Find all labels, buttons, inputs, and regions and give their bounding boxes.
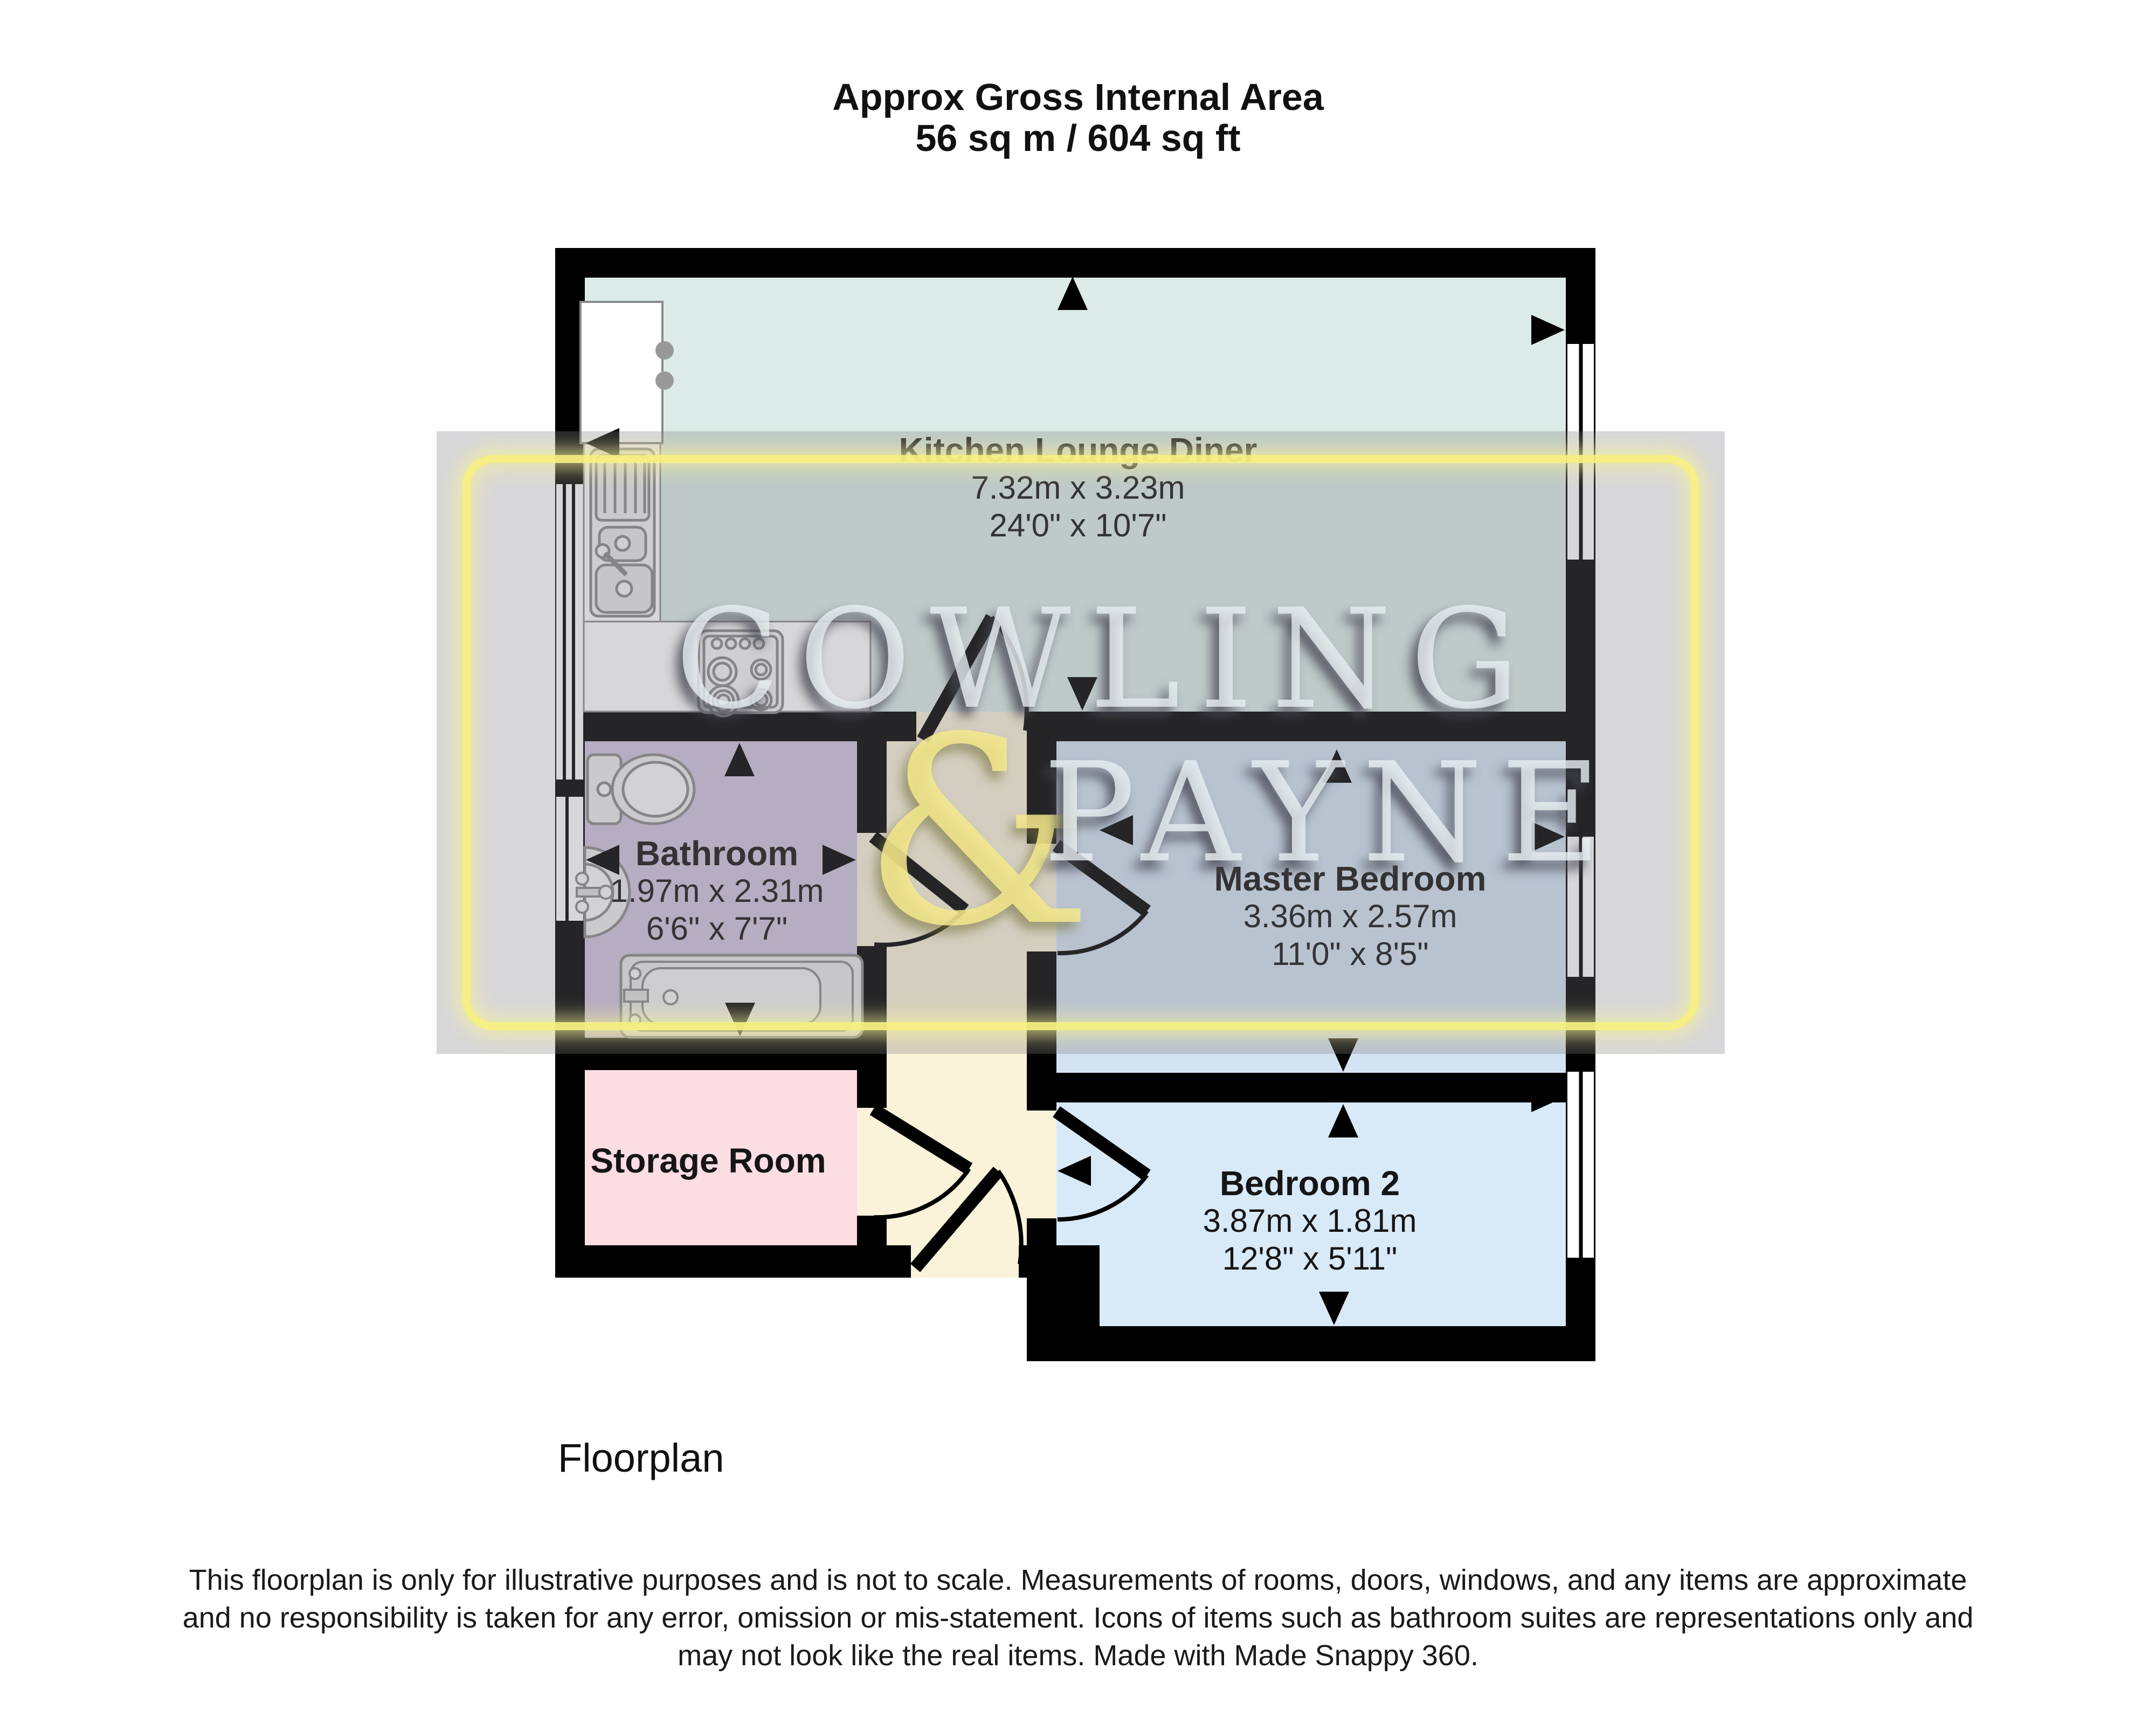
floorplan-page: Approx Gross Internal Area 56 sq m / 604… <box>0 0 2156 1717</box>
wall-bottom-hall-right <box>1019 1245 1056 1278</box>
wall-top <box>555 248 1595 278</box>
plan-caption: Floorplan <box>558 1435 724 1481</box>
bedroom2-name: Bedroom 2 <box>1203 1164 1417 1202</box>
storage-name: Storage Room <box>590 1142 826 1180</box>
window-bedroom2-right <box>1567 1072 1594 1258</box>
watermark-text-cowling: COWLING <box>675 580 1538 740</box>
opening-bedroom2 <box>1027 1111 1056 1218</box>
bedroom2-dim-ft: 12'8" x 5'11" <box>1203 1240 1417 1278</box>
unit-handle-2 <box>655 371 674 390</box>
opening-storage <box>857 1108 887 1216</box>
disclaimer-line1: This floorplan is only for illustrative … <box>0 1561 2156 1599</box>
disclaimer-line3: may not look like the real items. Made w… <box>0 1637 2156 1674</box>
bedroom2-label: Bedroom 2 3.87m x 1.81m 12'8" x 5'11" <box>1203 1164 1417 1278</box>
disclaimer-line2: and no responsibility is taken for any e… <box>0 1599 2156 1637</box>
unit-handle-1 <box>655 341 674 360</box>
wall-master-bedroom2 <box>1027 1073 1595 1102</box>
wall-storage-right-lower <box>857 1216 887 1245</box>
kitchen-unit <box>581 302 662 443</box>
wall-bedroom2-bottom <box>1027 1326 1595 1361</box>
disclaimer: This floorplan is only for illustrative … <box>0 1561 2156 1674</box>
wall-bottom-storage <box>555 1245 911 1278</box>
storage-room-label: Storage Room <box>590 1142 826 1180</box>
bedroom2-dim-m: 3.87m x 1.81m <box>1203 1202 1417 1240</box>
watermark: COWLING & PAYNE <box>437 431 1725 1054</box>
watermark-text-payne: PAYNE <box>1043 733 1620 893</box>
wall-storage-right-upper <box>857 1070 887 1108</box>
